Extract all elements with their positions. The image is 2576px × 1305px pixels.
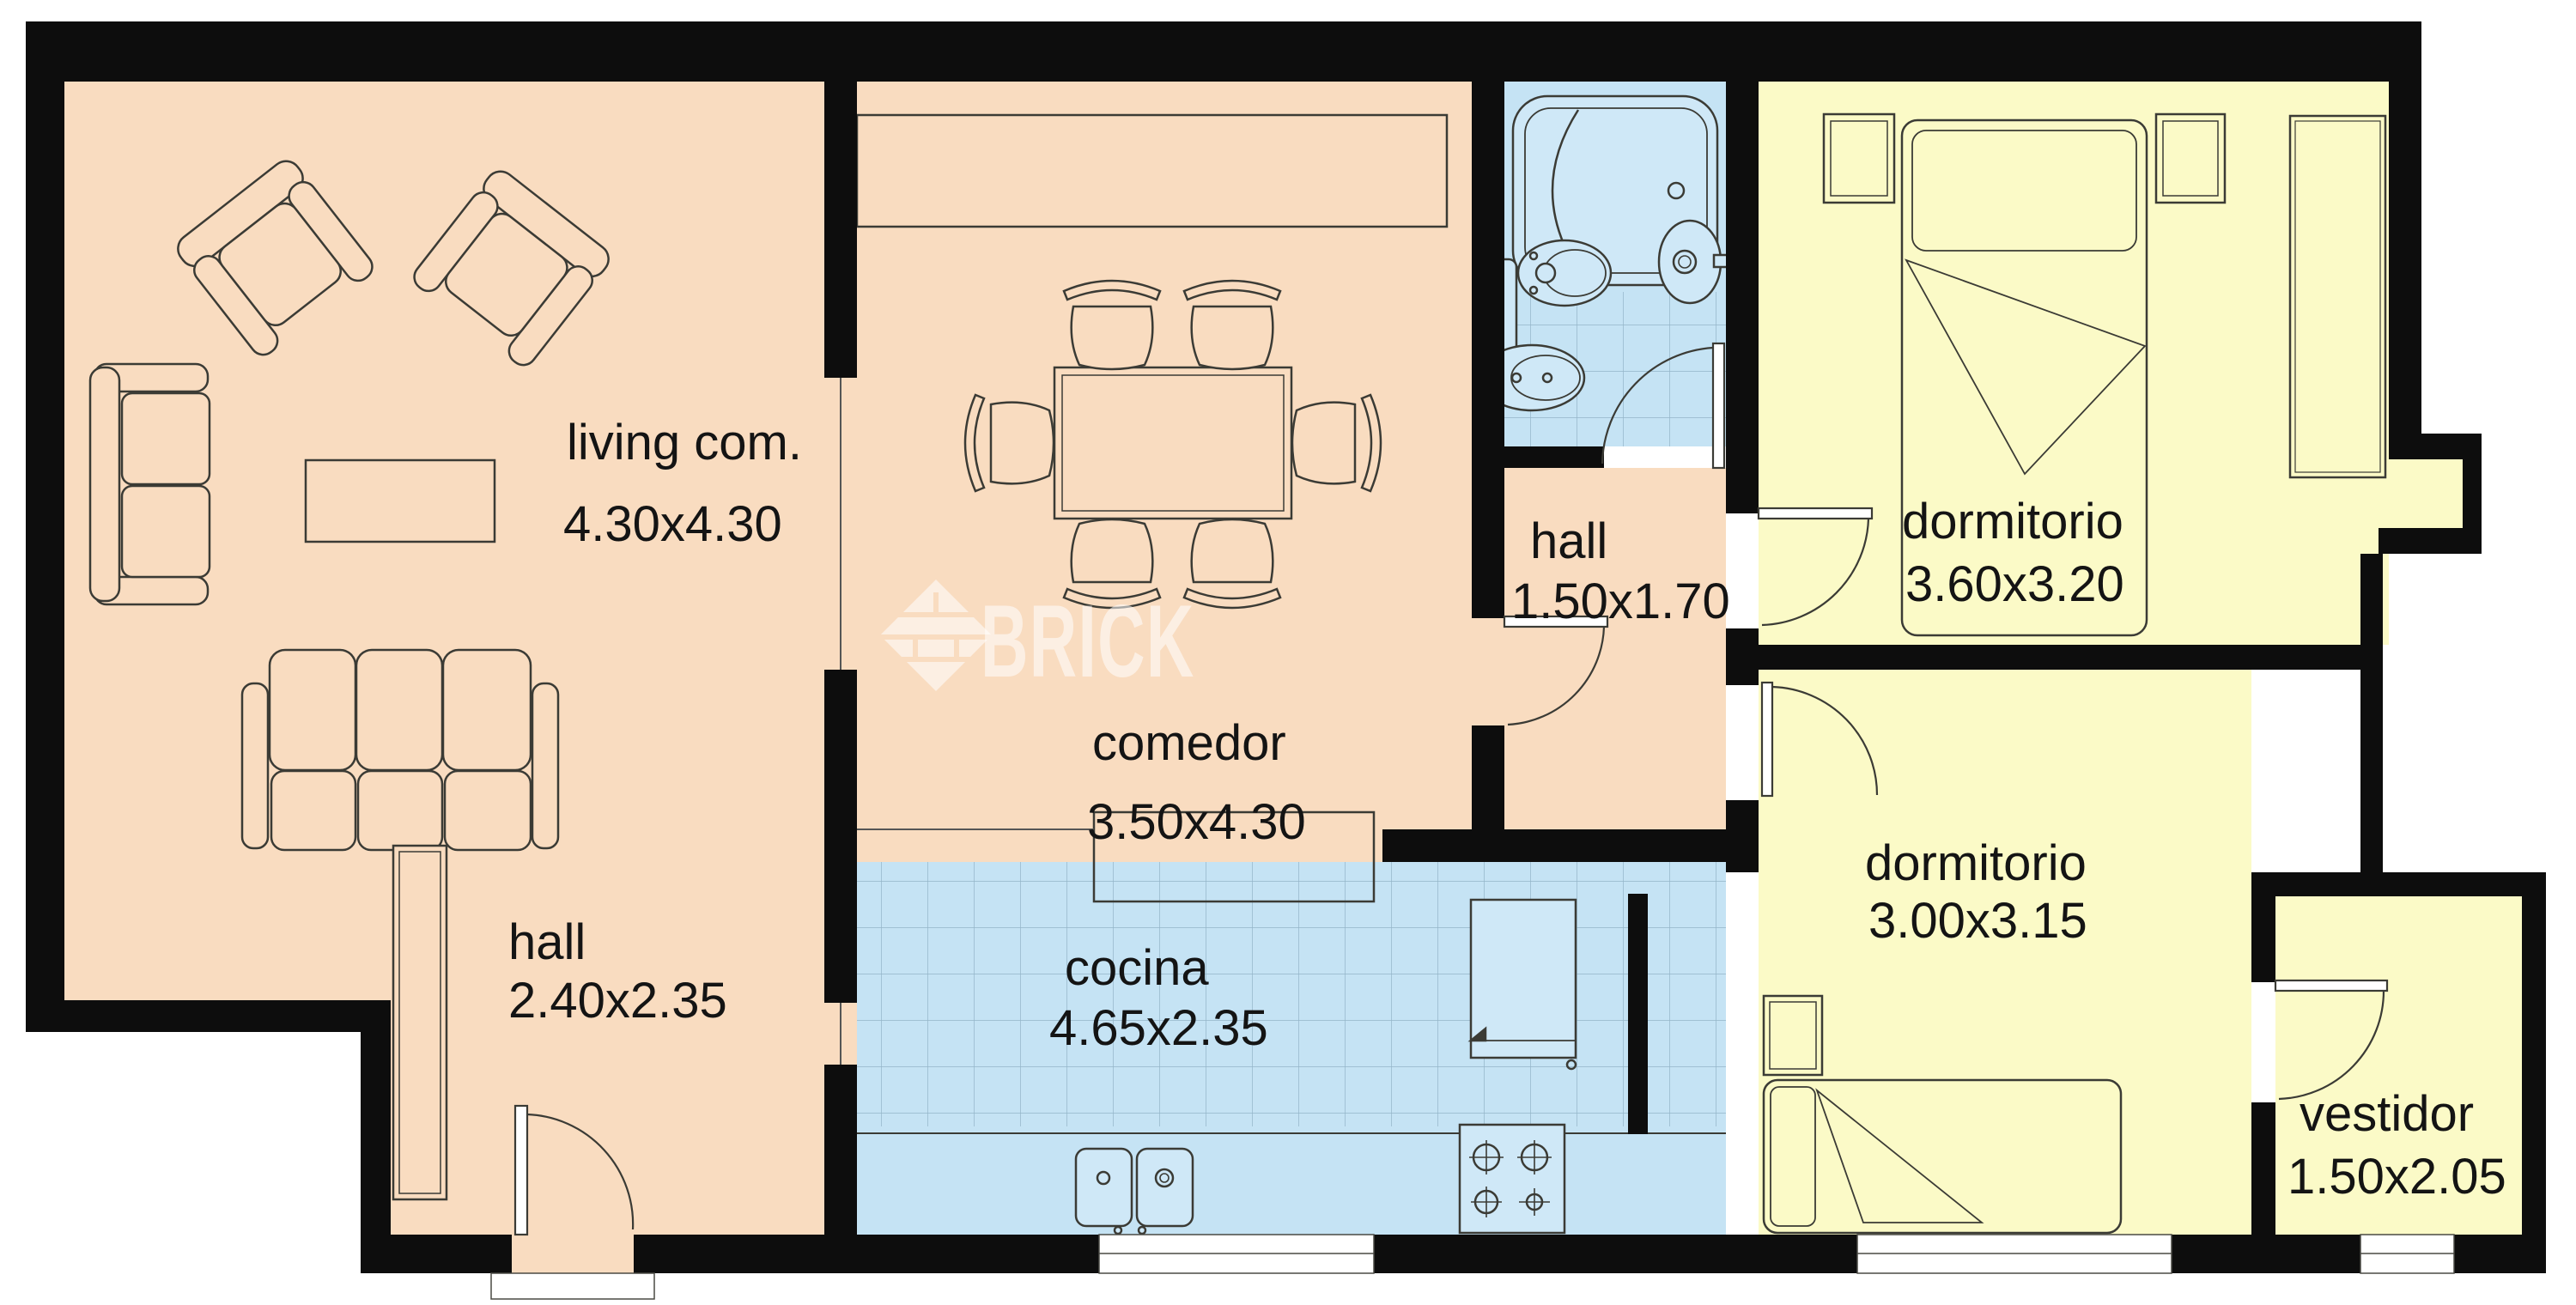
wall-dorm1-right bbox=[2389, 82, 2421, 434]
fridge bbox=[1471, 900, 1576, 1069]
brick-watermark: BRICK bbox=[879, 580, 1195, 699]
wall-bottom bbox=[1374, 1235, 1857, 1273]
cocina-label: cocina bbox=[1065, 940, 1209, 996]
window bbox=[1857, 1235, 2172, 1273]
wall-hall-left bbox=[361, 1000, 391, 1273]
wall-dorm2-right bbox=[2360, 670, 2383, 872]
wall-hall-dorm bbox=[1726, 670, 1759, 685]
wall-comedor-cocina bbox=[1382, 829, 1726, 862]
sideboard bbox=[857, 115, 1447, 227]
floorplan: BRICK living com. 4.30x4.30 comedor 3.50… bbox=[0, 0, 2576, 1305]
living-dims: 4.30x4.30 bbox=[563, 496, 782, 552]
watermark-text: BRICK bbox=[981, 585, 1195, 699]
wall-hall-dorm bbox=[1726, 628, 1759, 645]
wall-living-divider bbox=[824, 82, 857, 378]
living-label: living com. bbox=[567, 415, 802, 470]
hall-closet bbox=[393, 846, 447, 1199]
floorplan-canvas: BRICK living com. 4.30x4.30 comedor 3.50… bbox=[0, 0, 2576, 1305]
hall-bottom-floor bbox=[391, 829, 857, 1235]
coffee-table bbox=[306, 460, 495, 542]
wall-bottom bbox=[2172, 1235, 2360, 1273]
hall-top-dims: 1.50x1.70 bbox=[1511, 574, 1730, 629]
hall-bottom-dims: 2.40x2.35 bbox=[508, 973, 727, 1029]
wall-bottom bbox=[634, 1235, 1099, 1273]
wall-alcove-top bbox=[2389, 434, 2482, 459]
dining-table bbox=[1054, 367, 1291, 519]
wall-dorm-divider bbox=[1726, 645, 2383, 670]
dormitorio2-label: dormitorio bbox=[1865, 835, 2087, 891]
sofa-three-seat bbox=[242, 650, 558, 850]
comedor-label: comedor bbox=[1092, 715, 1286, 771]
window bbox=[2360, 1235, 2454, 1273]
bed-single bbox=[1764, 1080, 2121, 1233]
cocina-counter bbox=[857, 1126, 1726, 1235]
wall-hall-dorm bbox=[1726, 800, 1759, 872]
dormitorio1-alcove-floor bbox=[2389, 459, 2463, 528]
comedor-dims: 3.50x4.30 bbox=[1087, 794, 1306, 850]
wall-top bbox=[26, 21, 2421, 82]
wall-hall-dorm bbox=[1726, 82, 1759, 513]
wall-bottom bbox=[361, 1235, 512, 1273]
dormitorio1-dims: 3.60x3.20 bbox=[1905, 556, 2124, 612]
nightstand bbox=[2156, 114, 2225, 203]
wall-comedor-right bbox=[1472, 725, 1504, 829]
wall-bath-bottom bbox=[1472, 446, 1604, 468]
wall-cocina-stub bbox=[1628, 894, 1648, 1134]
hall-top-label: hall bbox=[1530, 513, 1607, 569]
wall-living-divider bbox=[824, 1065, 857, 1235]
vestidor-label: vestidor bbox=[2300, 1086, 2474, 1142]
window bbox=[1099, 1235, 1374, 1273]
wall-vestidor-top bbox=[2251, 872, 2546, 896]
cocina-dims: 4.65x2.35 bbox=[1049, 1000, 1268, 1056]
wall-bottom-left bbox=[26, 1000, 391, 1032]
vestidor-dims: 1.50x2.05 bbox=[2287, 1149, 2506, 1205]
nightstand bbox=[1764, 996, 1822, 1075]
hall-bottom-label: hall bbox=[508, 914, 586, 970]
nightstand bbox=[1824, 114, 1894, 203]
wall-comedor-right bbox=[1472, 82, 1504, 618]
wardrobe bbox=[2290, 116, 2385, 477]
wall-vestidor-left bbox=[2251, 896, 2275, 982]
sofa-two-seat bbox=[90, 364, 210, 604]
dormitorio2-dims: 3.00x3.15 bbox=[1868, 893, 2087, 949]
wall-right bbox=[2522, 872, 2546, 1273]
stove bbox=[1460, 1125, 1564, 1233]
wall-living-divider bbox=[824, 670, 857, 1003]
dormitorio1-label: dormitorio bbox=[1902, 494, 2123, 549]
wall-alcove-bottom bbox=[2379, 528, 2482, 554]
wall-vestidor-left bbox=[2251, 1102, 2275, 1235]
wall-dorm1-lower-right bbox=[2360, 554, 2383, 670]
wall-left bbox=[26, 21, 64, 1032]
entrance-opening bbox=[491, 1235, 654, 1299]
